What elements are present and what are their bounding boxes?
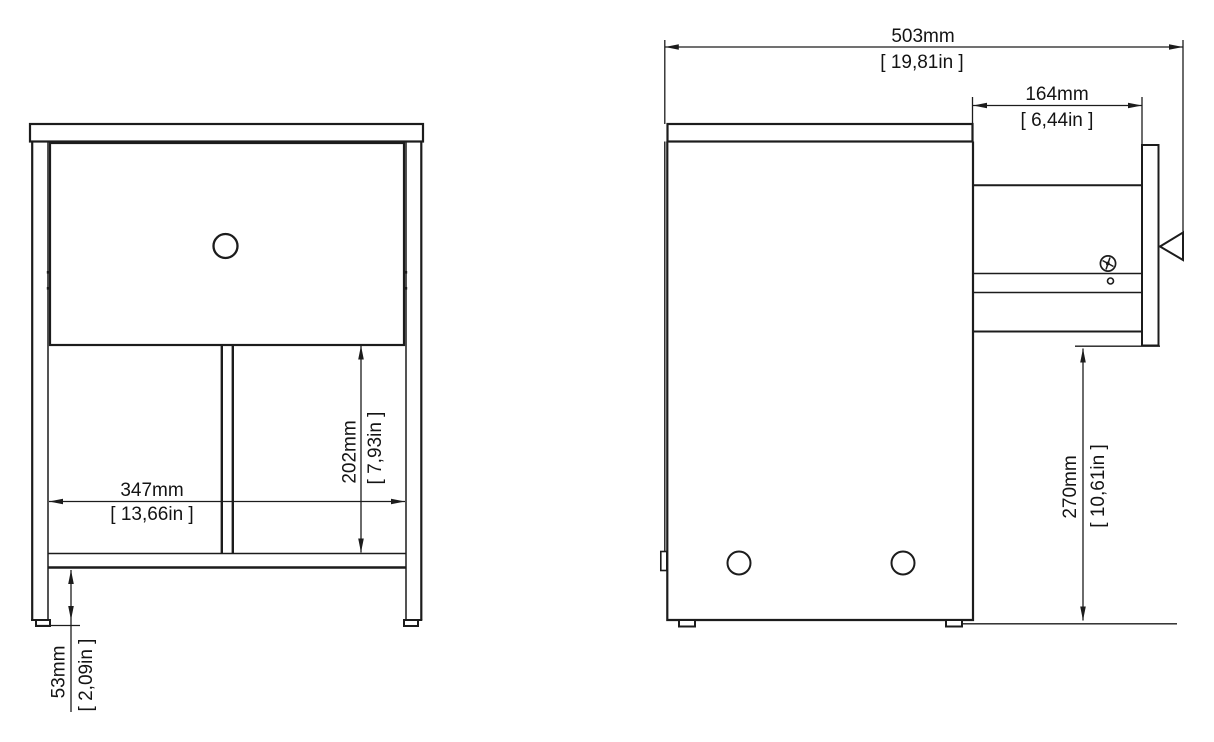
front-left-connector-mark-bottom [47, 287, 51, 290]
dim-front-drawer-to-shelf: 202mm [ 7,93in ] [340, 346, 387, 553]
side-cam-screw-icon [1100, 256, 1115, 271]
dim-side-drawer-extension-inch: [ 6,44in ] [1021, 110, 1094, 131]
front-left-connector-mark-top [47, 271, 51, 274]
dim-side-drawer-clearance-inch: [ 10,61in ] [1088, 444, 1109, 527]
technical-drawing-page: 347mm [ 13,66in ] 202mm [ 7,93in ] 53mm … [0, 0, 1214, 742]
side-front-foot [946, 620, 962, 627]
front-right-foot [404, 620, 418, 626]
dim-side-depth-inch: [ 19,81in ] [880, 52, 963, 73]
side-view: 503mm [ 19,81in ] 164mm [ 6,44in ] 270mm… [661, 26, 1183, 627]
dim-side-depth-mm: 503mm [891, 26, 954, 47]
side-back-panel-bracket [661, 552, 667, 571]
dim-front-plinth: 53mm [ 2,09in ] [36, 570, 97, 712]
dim-front-plinth-inch: [ 2,09in ] [76, 639, 97, 712]
dim-side-drawer-extension-mm: 164mm [1025, 84, 1088, 105]
front-top-panel [30, 124, 423, 142]
dim-side-drawer-clearance-mm: 270mm [1060, 455, 1081, 518]
side-cam-hole-left [728, 552, 751, 575]
dim-front-drawer-to-shelf-inch: [ 7,93in ] [365, 412, 386, 485]
dim-front-width: 347mm [ 13,66in ] [49, 480, 405, 525]
side-cam-hole-right [892, 552, 915, 575]
side-body-outline [667, 142, 973, 621]
dim-side-drawer-clearance: 270mm [ 10,61in ] [962, 346, 1177, 624]
side-pilot-hole [1108, 278, 1114, 284]
dim-front-width-mm: 347mm [120, 480, 183, 501]
side-back-foot [679, 620, 695, 627]
dim-front-drawer-to-shelf-mm: 202mm [340, 420, 361, 483]
side-drawer-front-panel [1142, 145, 1159, 346]
dim-side-drawer-extension: 164mm [ 6,44in ] [973, 84, 1143, 145]
front-right-connector-mark-bottom [403, 287, 407, 290]
front-view: 347mm [ 13,66in ] 202mm [ 7,93in ] 53mm … [30, 124, 423, 712]
side-cam-screw-center [1106, 262, 1110, 266]
dim-front-width-inch: [ 13,66in ] [110, 504, 193, 525]
side-top-panel [668, 124, 973, 142]
front-drawer-front-panel [50, 143, 404, 345]
front-right-connector-mark-top [403, 271, 407, 274]
furniture-dimension-drawing: 347mm [ 13,66in ] 202mm [ 7,93in ] 53mm … [0, 0, 1214, 742]
side-drawer-knob [1160, 233, 1183, 261]
dim-front-plinth-mm: 53mm [49, 646, 70, 699]
